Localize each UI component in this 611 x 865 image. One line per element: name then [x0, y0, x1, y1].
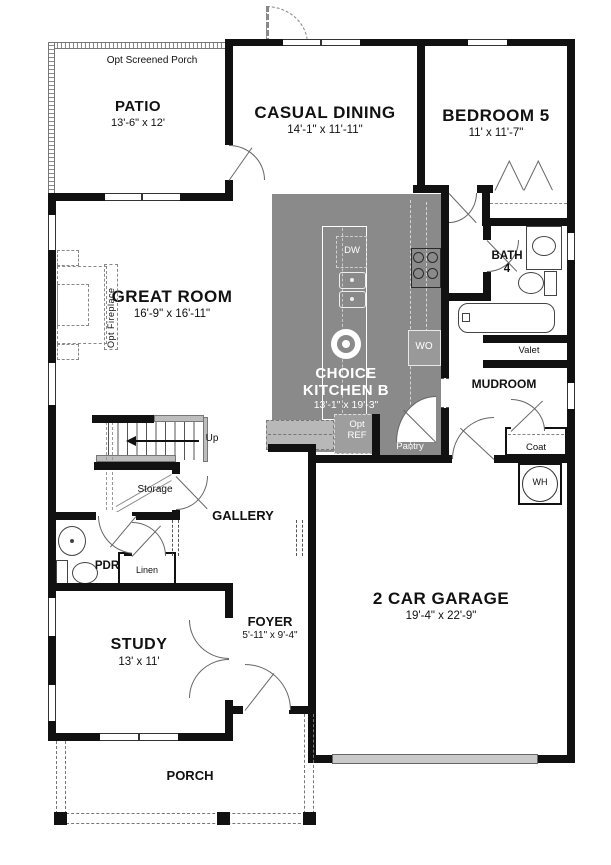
burner — [413, 252, 424, 263]
door-swing-arc — [229, 145, 265, 180]
french-door-arc — [189, 620, 229, 659]
up-arrow — [135, 440, 199, 442]
bathtub — [458, 303, 555, 333]
valet-label: Valet — [519, 346, 540, 356]
window-tick — [138, 733, 140, 741]
cased-opening-marker — [296, 520, 297, 556]
bifold-door — [538, 160, 553, 190]
wall — [482, 218, 575, 226]
opt-ref-label-line1: Opt — [349, 420, 364, 430]
wall — [94, 462, 180, 470]
floor-plan: Opt Screened Porch PATIO 13'-6" x 12' CA… — [0, 0, 611, 865]
wall — [372, 414, 380, 463]
wall — [225, 39, 575, 46]
foyer-label: FOYER — [248, 615, 293, 629]
casual-dining-dims: 14'-1" x 11'-11" — [287, 124, 362, 137]
toilet-bowl — [518, 272, 544, 294]
opt-fireplace-outline — [57, 284, 89, 326]
opt-ref-label-line2: REF — [348, 431, 367, 441]
front-door-arc — [245, 664, 291, 710]
pdr-label: PDR — [95, 560, 119, 573]
cased-opening-marker — [172, 520, 173, 556]
wall — [417, 46, 425, 193]
tub-faucet — [462, 313, 470, 322]
wall — [483, 360, 575, 368]
window — [48, 598, 56, 636]
wall — [48, 193, 56, 741]
sink-drain — [350, 278, 354, 282]
burner — [413, 268, 424, 279]
porch-edge — [56, 741, 66, 819]
dishwasher-label: DW — [344, 246, 360, 256]
wall — [308, 455, 575, 463]
great-room-dims: 16'-9" x 16'-11" — [134, 308, 210, 321]
french-door-arc — [189, 659, 229, 698]
window — [468, 39, 507, 46]
wall — [441, 193, 449, 460]
kitchen-label-line2: KITCHEN B — [303, 383, 389, 400]
coat-label: Coat — [526, 443, 546, 453]
up-label: Up — [206, 433, 219, 444]
burner — [427, 268, 438, 279]
bath4-label-line1: BATH — [491, 250, 522, 263]
sink-drain — [350, 297, 354, 301]
garage-door — [332, 754, 538, 764]
cased-opening-marker — [178, 520, 179, 556]
window — [48, 685, 56, 721]
window-tick — [141, 193, 143, 201]
stair-landing — [96, 455, 176, 462]
screen-wall — [48, 42, 233, 49]
bedroom5-dims: 11' x 11'-7" — [469, 127, 524, 140]
foyer-dims: 5'-11" x 9'-4" — [242, 630, 297, 641]
window — [567, 233, 575, 260]
porch-edge — [304, 714, 314, 824]
pdr-sink-drain — [70, 539, 74, 543]
opt-fireplace-outline — [57, 250, 79, 266]
up-arrowhead — [126, 436, 136, 446]
porch-edge — [56, 813, 316, 824]
porch-post — [54, 812, 67, 825]
door-opening — [449, 185, 477, 193]
bifold-door — [509, 160, 524, 190]
screen-wall — [48, 42, 55, 195]
window — [567, 383, 575, 409]
window — [48, 215, 56, 250]
cased-opening — [441, 378, 449, 408]
garage-label: 2 CAR GARAGE — [373, 590, 509, 609]
stair-landing — [154, 415, 204, 422]
wall-oven-label: WO — [415, 341, 432, 352]
coat-shelf — [508, 434, 564, 435]
mudroom-label: MUDROOM — [472, 378, 537, 391]
burner — [427, 252, 438, 263]
wall — [92, 415, 154, 423]
stair-rail — [112, 422, 113, 520]
bedroom5-label: BEDROOM 5 — [442, 107, 549, 126]
bath-sink — [532, 236, 556, 256]
choice-bullseye-icon — [342, 340, 350, 348]
water-heater-label: WH — [533, 478, 548, 488]
linen-label: Linen — [136, 566, 158, 576]
porch-post — [303, 812, 316, 825]
bath4-label-line2: 4 — [504, 263, 510, 276]
gallery-label: GALLERY — [212, 509, 274, 523]
bifold-door — [524, 161, 539, 191]
wall — [441, 293, 491, 301]
kitchen-label-line1: CHOICE — [315, 366, 376, 383]
opt-fireplace-label: Opt Fireplace — [104, 264, 118, 350]
window-tick — [320, 39, 322, 46]
wall — [268, 444, 316, 452]
patio-dims: 13'-6" x 12' — [111, 117, 165, 129]
kitchen-dims: 13'-1" x 19'-3" — [314, 400, 379, 412]
stair-rail — [106, 422, 107, 520]
counter-edge — [268, 434, 332, 435]
pantry-label: Pantry — [396, 442, 423, 452]
bifold-door — [495, 161, 510, 191]
casual-dining-label: CASUAL DINING — [254, 104, 395, 123]
porch-post — [217, 812, 230, 825]
garage-dims: 19'-4" x 22'-9" — [406, 610, 477, 623]
study-dims: 13' x 11' — [118, 656, 159, 669]
study-label: STUDY — [111, 636, 168, 654]
cased-opening-marker — [302, 520, 303, 556]
closet-shelf — [490, 203, 567, 204]
great-room-label: GREAT ROOM — [112, 288, 233, 307]
storage-label: Storage — [137, 484, 172, 495]
toilet-tank — [544, 271, 557, 296]
opt-fireplace-outline — [57, 344, 79, 360]
porch-label: PORCH — [167, 769, 214, 783]
opt-screened-porch-label: Opt Screened Porch — [107, 55, 198, 66]
patio-label: PATIO — [115, 99, 161, 116]
wall — [483, 335, 575, 343]
window — [48, 363, 56, 405]
